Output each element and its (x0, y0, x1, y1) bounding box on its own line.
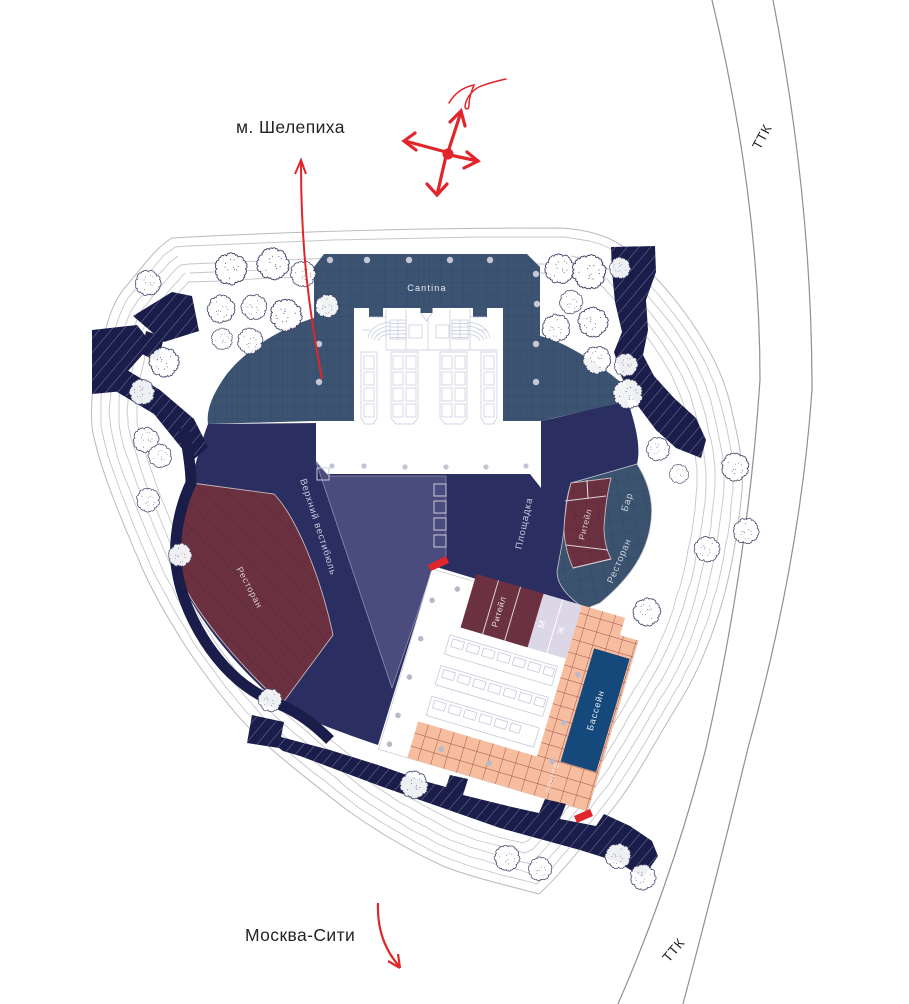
svg-text:м. Шелепиха: м. Шелепиха (236, 117, 345, 137)
svg-text:Москва-Сити: Москва-Сити (245, 925, 355, 945)
svg-text:Cantina: Cantina (407, 283, 446, 293)
